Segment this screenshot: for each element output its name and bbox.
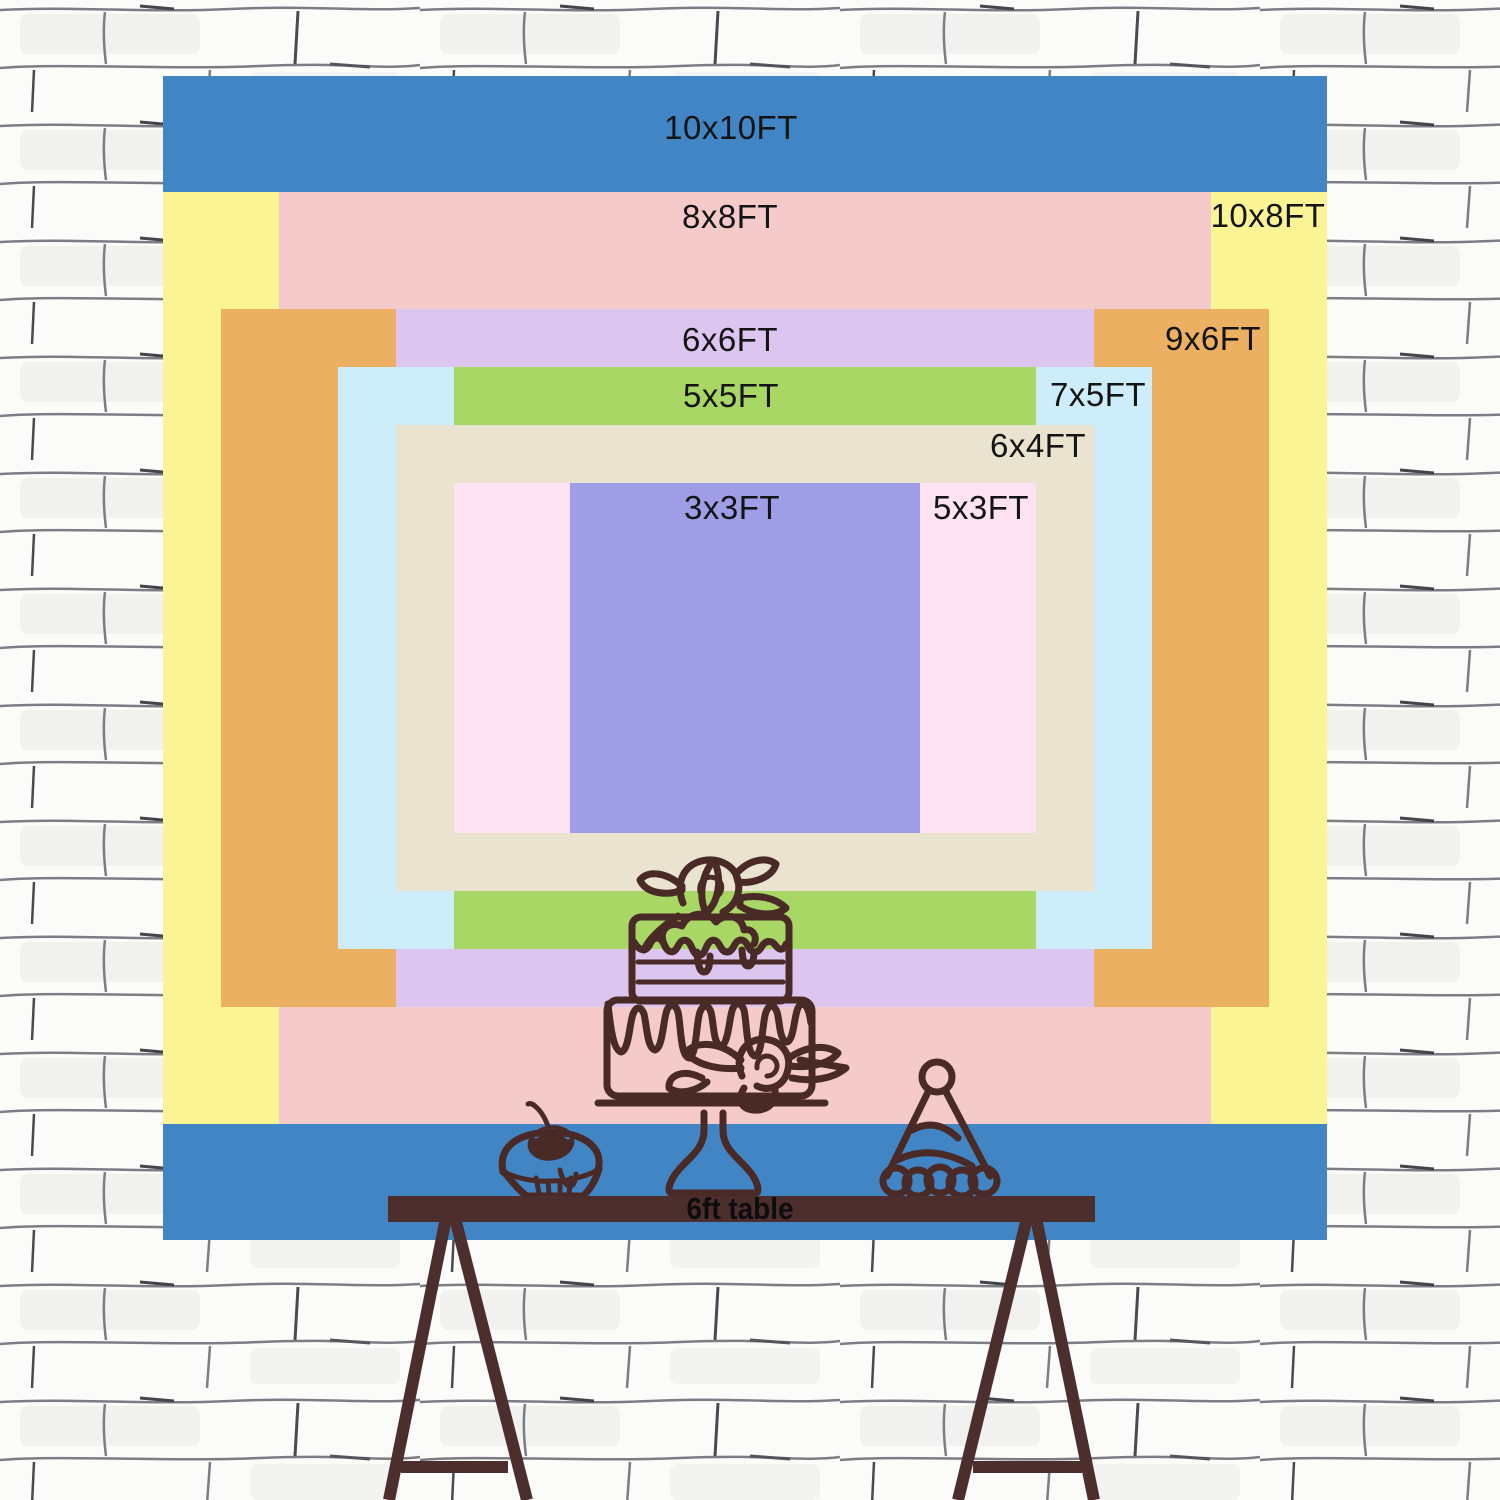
table-legs: [0, 0, 1500, 1500]
table-label: 6ft table: [687, 1191, 794, 1227]
backdrop-size-chart: 10x10FT10x8FT8x8FT9x6FT6x6FT7x5FT5x5FT6x…: [0, 0, 1500, 1500]
